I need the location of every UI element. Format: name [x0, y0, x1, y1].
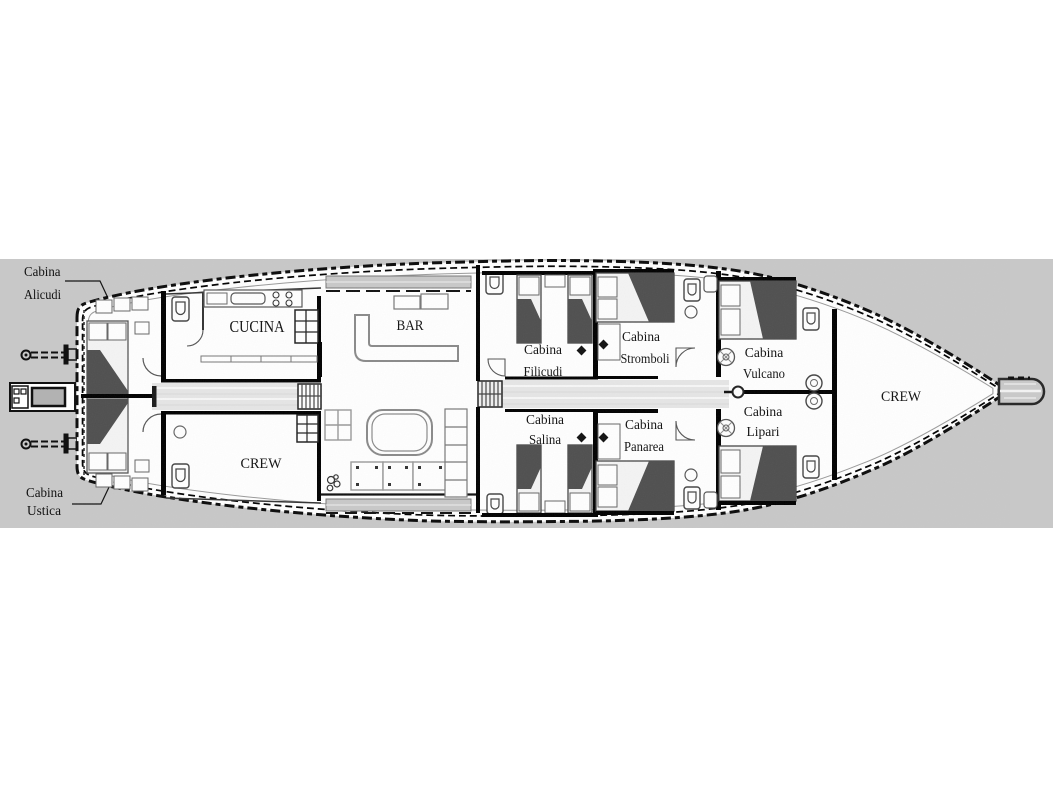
svg-text:Alicudi: Alicudi: [24, 288, 61, 303]
svg-text:Cabina: Cabina: [24, 265, 61, 280]
svg-text:Cabina: Cabina: [26, 486, 64, 501]
svg-text:Ustica: Ustica: [27, 504, 62, 519]
